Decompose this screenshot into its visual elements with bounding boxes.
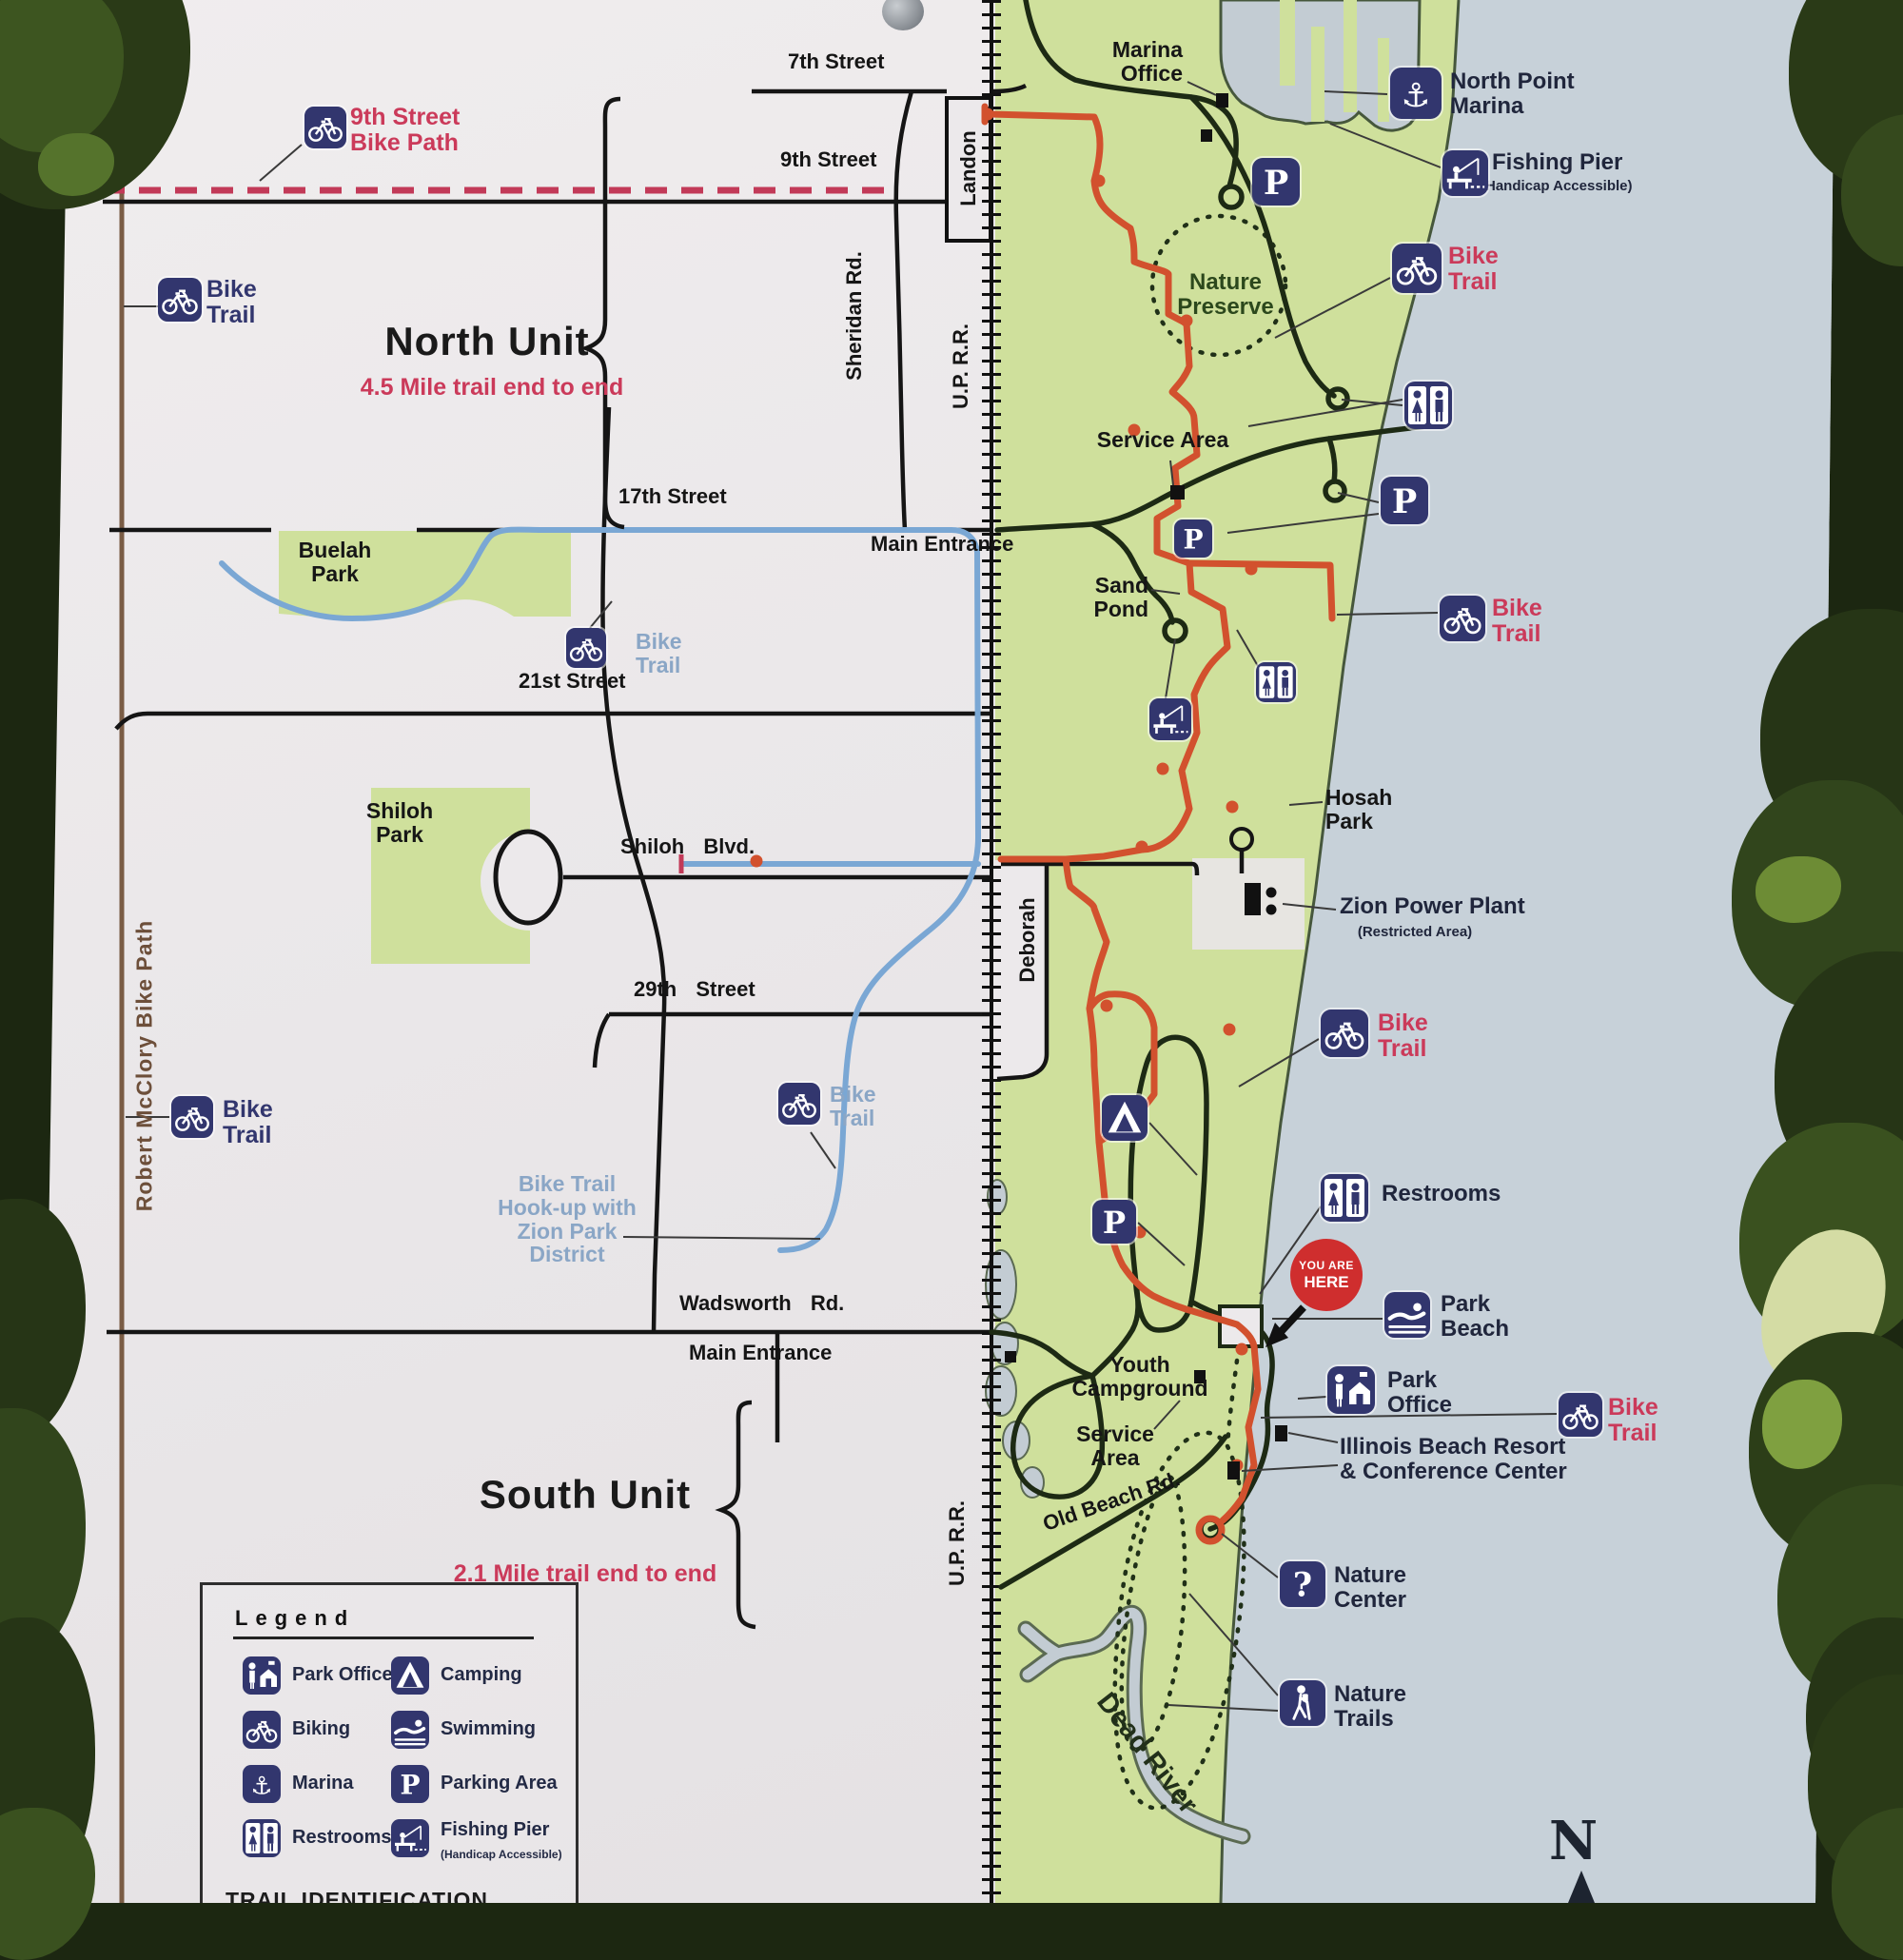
legend-item-label: Swimming bbox=[441, 1718, 536, 1740]
compass-north: N bbox=[1549, 1810, 1598, 1872]
shiloh-roundabout bbox=[496, 832, 560, 923]
legend-item-label: Park Offices bbox=[292, 1664, 403, 1686]
svg-text:P: P bbox=[400, 1769, 420, 1800]
restrooms-icon bbox=[243, 1819, 281, 1857]
fishing-pier-icon bbox=[391, 1819, 429, 1857]
svg-text:⚓: ⚓ bbox=[251, 1772, 273, 1800]
park-offices-icon bbox=[243, 1656, 281, 1695]
you-are-here-line1: YOU ARE bbox=[1299, 1259, 1354, 1272]
marina-icon: ⚓ bbox=[243, 1765, 281, 1803]
legend-item-label: Biking bbox=[292, 1718, 350, 1740]
blue-bike-trail bbox=[222, 530, 978, 1250]
you-are-here-badge: YOU ARE HERE bbox=[1290, 1239, 1363, 1311]
legend-item-label: Fishing Pier bbox=[441, 1819, 549, 1841]
legend-item-label: Parking Area bbox=[441, 1773, 558, 1794]
photo-of-park-map-sign: { "colors": { "sign": "#ece9eb", "park":… bbox=[0, 0, 1903, 1903]
legend-title: Legend bbox=[235, 1606, 355, 1631]
deborah-white-strip bbox=[993, 860, 1049, 1081]
legend-rule bbox=[233, 1637, 534, 1639]
legend-item-label: Camping bbox=[441, 1664, 522, 1686]
legend-item-label: Marina bbox=[292, 1773, 353, 1794]
parking-area-icon: P bbox=[391, 1765, 429, 1803]
you-are-here-line2: HERE bbox=[1304, 1273, 1348, 1292]
legend-item-label: Restrooms bbox=[292, 1827, 391, 1849]
camping-icon bbox=[391, 1656, 429, 1695]
swimming-icon bbox=[391, 1711, 429, 1749]
legend-footer: TRAIL IDENTIFICATION bbox=[226, 1888, 488, 1913]
map-sign-panel: 7th Street9th Street17th Street21st Stre… bbox=[0, 0, 1903, 1903]
legend-item-sublabel: (Handicap Accessible) bbox=[441, 1848, 562, 1861]
legend: Legend Park OfficesCampingBikingSwimming… bbox=[200, 1582, 579, 1921]
biking-icon bbox=[243, 1711, 281, 1749]
